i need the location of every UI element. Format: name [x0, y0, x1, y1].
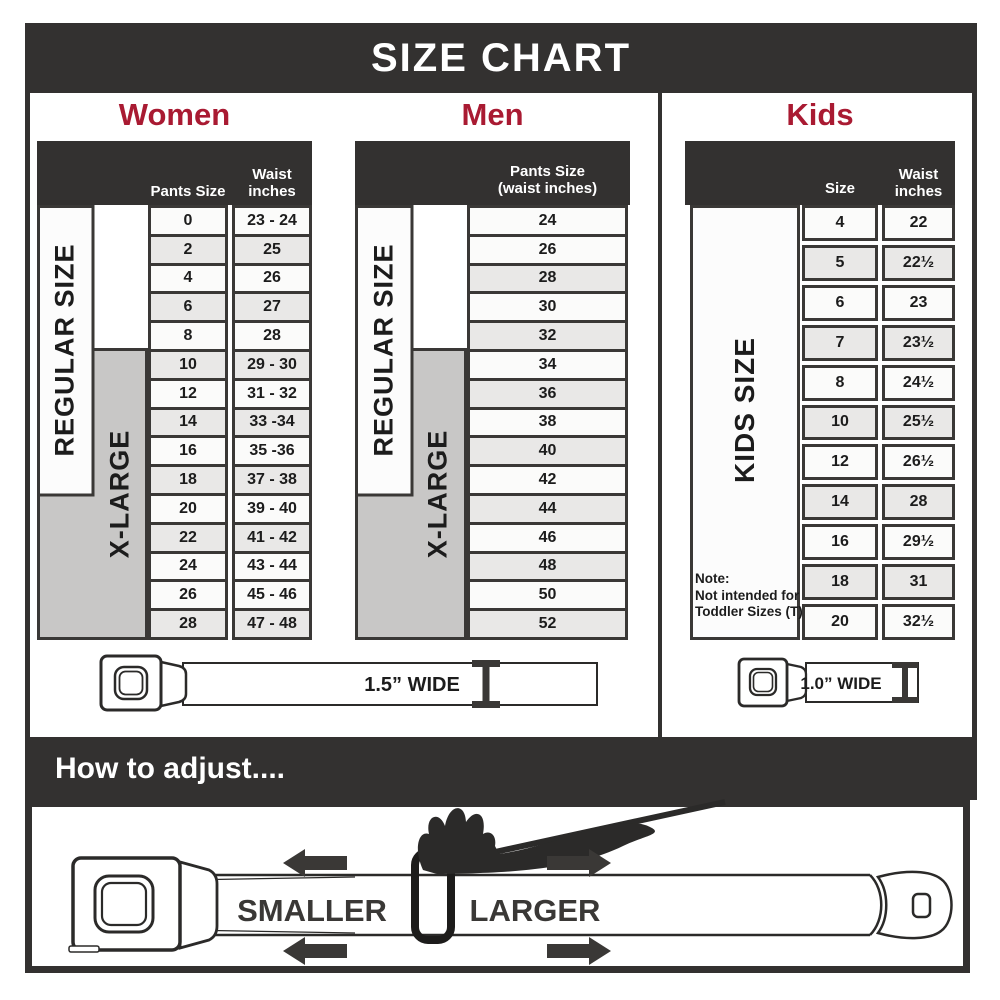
kids-waist-cell: 23½: [882, 325, 955, 361]
women-waist-cell: 37 - 38: [232, 464, 312, 496]
kids-size-cell: 5: [802, 245, 878, 281]
women-size-cell: 10: [148, 349, 228, 381]
kids-col-size-header: Size: [802, 180, 878, 197]
kids-waist-cell: 23: [882, 285, 955, 321]
kids-waist-column: 2222½2323½24½25½26½2829½3132½: [882, 205, 955, 640]
men-table-header: Pants Size (waist inches): [355, 141, 630, 205]
kids-waist-cell: 31: [882, 564, 955, 600]
women-size-cell: 28: [148, 608, 228, 640]
kids-belt-width-label: 1.0” WIDE: [800, 674, 881, 693]
women-size-cell: 20: [148, 493, 228, 525]
women-col-waist-header: Waist inches: [232, 166, 312, 200]
kids-size-cell: 14: [802, 484, 878, 520]
kids-size-cell: 6: [802, 285, 878, 321]
women-waist-cell: 26: [232, 263, 312, 295]
men-size-cell: 40: [467, 435, 628, 467]
women-waist-cell: 29 - 30: [232, 349, 312, 381]
kids-col-waist-header: Waist inches: [882, 166, 955, 200]
kids-table-header: Size Waist inches: [685, 141, 955, 205]
how-to-adjust-heading: How to adjust....: [55, 752, 285, 786]
women-size-cell: 18: [148, 464, 228, 496]
kids-section-title: Kids: [685, 97, 955, 133]
men-size-cell: 34: [467, 349, 628, 381]
size-chart-page: SIZE CHART Women Pants Size Waist inches…: [0, 0, 1000, 1000]
kids-size-cell: 8: [802, 365, 878, 401]
kids-waist-cell: 32½: [882, 604, 955, 640]
women-size-cell: 12: [148, 378, 228, 410]
women-size-cell: 14: [148, 407, 228, 439]
men-xlarge-label: X-LARGE: [423, 430, 454, 559]
kids-note: Note: Not intended for Toddler Sizes (T): [695, 571, 803, 621]
women-col-pants-size-header: Pants Size: [148, 183, 228, 200]
kids-size-cell: 12: [802, 444, 878, 480]
kids-size-cell: 10: [802, 405, 878, 441]
kids-waist-cell: 22½: [882, 245, 955, 281]
men-size-cell: 28: [467, 263, 628, 295]
women-waist-cell: 23 - 24: [232, 205, 312, 237]
men-size-cell: 24: [467, 205, 628, 237]
kids-size-cell: 20: [802, 604, 878, 640]
women-waist-cell: 43 - 44: [232, 551, 312, 583]
women-waist-cell: 39 - 40: [232, 493, 312, 525]
adjust-buckle-icon: [69, 858, 217, 952]
women-waist-cell: 45 - 46: [232, 579, 312, 611]
women-waist-cell: 28: [232, 320, 312, 352]
women-pants-size-column: 0246810121416182022242628: [148, 205, 228, 640]
women-size-cell: 6: [148, 291, 228, 323]
women-size-cell: 22: [148, 522, 228, 554]
women-waist-cell: 41 - 42: [232, 522, 312, 554]
kids-size-cell: 16: [802, 524, 878, 560]
men-size-cell: 48: [467, 551, 628, 583]
men-size-cell: 52: [467, 608, 628, 640]
kids-waist-cell: 29½: [882, 524, 955, 560]
smaller-label: SMALLER: [237, 893, 387, 928]
women-size-cell: 16: [148, 435, 228, 467]
women-size-cell: 2: [148, 234, 228, 266]
women-xlarge-label: X-LARGE: [105, 430, 136, 559]
kids-waist-cell: 22: [882, 205, 955, 241]
adjust-belt-tip: [870, 872, 952, 938]
adult-belt-width-label: 1.5” WIDE: [364, 674, 460, 696]
men-size-cell: 44: [467, 493, 628, 525]
women-waist-cell: 47 - 48: [232, 608, 312, 640]
men-size-cell: 26: [467, 234, 628, 266]
belt-tip-slot: [913, 894, 930, 917]
kids-belt-illustration: 1.0” WIDE: [735, 655, 930, 710]
women-waist-cell: 35 -36: [232, 435, 312, 467]
men-size-cell: 30: [467, 291, 628, 323]
men-section-title: Men: [355, 97, 630, 133]
kids-size-cell: 4: [802, 205, 878, 241]
men-pants-size-column: 242628303234363840424446485052: [467, 205, 628, 640]
women-table-header: Pants Size Waist inches: [37, 141, 312, 205]
adult-belt-latch: [161, 662, 186, 706]
women-waist-cell: 25: [232, 234, 312, 266]
kids-size-label: KIDS SIZE: [729, 337, 761, 483]
women-waist-column: 23 - 242526272829 - 3031 - 3233 -3435 -3…: [232, 205, 312, 640]
kids-buckle-button-inner: [754, 673, 773, 692]
women-regular-size-label: REGULAR SIZE: [50, 243, 81, 456]
kids-waist-cell: 26½: [882, 444, 955, 480]
women-size-cell: 4: [148, 263, 228, 295]
men-size-cell: 38: [467, 407, 628, 439]
men-size-cell: 50: [467, 579, 628, 611]
kids-waist-cell: 24½: [882, 365, 955, 401]
men-col-pants-size-header: Pants Size (waist inches): [467, 163, 628, 197]
kids-size-cell: 18: [802, 564, 878, 600]
women-size-cell: 26: [148, 579, 228, 611]
kids-size-cell: 7: [802, 325, 878, 361]
women-size-cell: 8: [148, 320, 228, 352]
men-regular-size-label: REGULAR SIZE: [369, 243, 400, 456]
women-size-cell: 0: [148, 205, 228, 237]
women-section-title: Women: [37, 97, 312, 133]
page-title: SIZE CHART: [371, 36, 631, 81]
section-divider: [658, 93, 662, 737]
men-size-cell: 46: [467, 522, 628, 554]
men-size-cell: 32: [467, 320, 628, 352]
larger-label: LARGER: [470, 893, 601, 928]
how-to-adjust-band: How to adjust....: [25, 737, 977, 800]
kids-waist-cell: 25½: [882, 405, 955, 441]
women-waist-cell: 27: [232, 291, 312, 323]
page-title-banner: SIZE CHART: [25, 23, 977, 93]
women-waist-cell: 31 - 32: [232, 378, 312, 410]
men-size-cell: 36: [467, 378, 628, 410]
kids-size-column: 45678101214161820: [802, 205, 878, 640]
men-size-cell: 42: [467, 464, 628, 496]
adjust-illustration: SMALLER LARGER: [25, 800, 970, 973]
women-size-cell: 24: [148, 551, 228, 583]
adult-buckle-button-inner: [120, 672, 143, 695]
kids-waist-cell: 28: [882, 484, 955, 520]
women-waist-cell: 33 -34: [232, 407, 312, 439]
adult-belt-illustration: 1.5” WIDE: [95, 650, 605, 715]
